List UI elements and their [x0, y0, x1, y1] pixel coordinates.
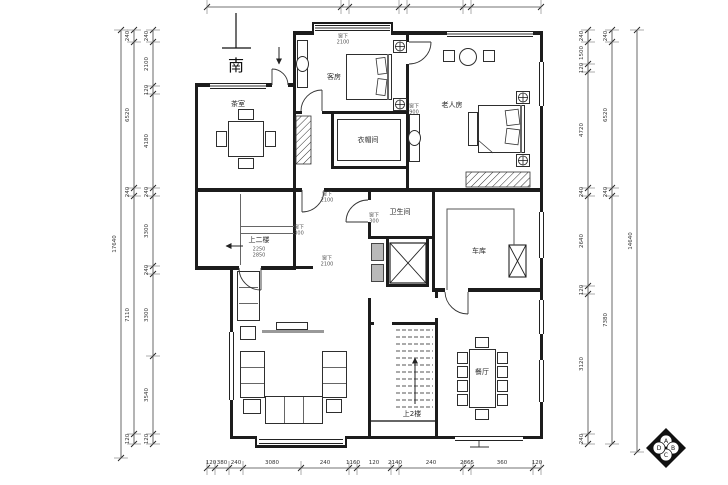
door-bath-arc	[346, 200, 368, 222]
compass-south-label: 南	[228, 52, 244, 76]
dim-label-left-inner-5: 3300	[144, 224, 150, 238]
annotation-hall-steps-num: 22502850	[253, 247, 266, 259]
logo-letter-D: D	[657, 445, 662, 452]
dim-label-right-outer-1: 6520	[603, 108, 609, 122]
annotation-win-duct: 窗下300	[369, 213, 379, 225]
dim-label-bottom-2: 240	[231, 460, 242, 466]
dim-label-bottom-10: 360	[497, 460, 508, 466]
dim-label-bottom-9: 2865	[460, 460, 474, 466]
room-label-stair-up: 上2楼	[403, 409, 421, 419]
dim-label-right-inner-0: 240	[579, 31, 585, 42]
dim-label-right-outer-0: 240	[603, 31, 609, 42]
room-label-garage: 车库	[472, 246, 486, 256]
dim-label-left-inner-9: 120	[144, 434, 150, 445]
logo-letter-B: B	[671, 445, 675, 452]
room-label-hall-up: 上二楼	[249, 235, 270, 245]
dim-label-left-outer-2: 240	[125, 187, 131, 198]
dim-label-bottom-4: 240	[320, 460, 331, 466]
room-label-guest-room: 客房	[327, 72, 341, 82]
dim-label-right-outer-3: 7380	[603, 313, 609, 327]
room-label-bath-room: 卫生间	[390, 207, 411, 217]
plan-linework: ABCD	[0, 0, 728, 485]
door-entry-arc	[272, 69, 288, 85]
door-elder-arc	[409, 42, 431, 64]
door-garage-arc	[445, 292, 468, 314]
dim-label-right-inner-2: 120	[579, 63, 585, 74]
dim-label-left-inner-0: 240	[144, 31, 150, 42]
annotation-win-corr-1: 窗下2100	[321, 192, 334, 204]
dim-label-left-total-0: 17640	[112, 235, 118, 253]
room-label-tea-room: 茶室	[231, 99, 245, 109]
dim-label-left-outer-3: 7110	[125, 308, 131, 322]
dim-label-bottom-5: 1160	[346, 460, 360, 466]
dim-label-right-total-0: 14640	[628, 232, 634, 250]
dim-label-right-outer-2: 240	[603, 187, 609, 198]
dim-label-left-inner-3: 4180	[144, 134, 150, 148]
dim-label-right-inner-5: 2640	[579, 234, 585, 248]
dim-label-bottom-6: 120	[369, 460, 380, 466]
room-label-dining-room: 餐厅	[475, 367, 489, 377]
room-label-cloak-room: 衣帽间	[358, 135, 379, 145]
annotation-win-corr-2: 窗下2100	[321, 256, 334, 268]
dim-label-left-inner-1: 2100	[144, 57, 150, 71]
brand-logo: ABCD	[646, 428, 686, 468]
annotation-win-top-guest: 窗下2100	[337, 34, 350, 46]
dim-label-right-inner-7: 3120	[579, 357, 585, 371]
dim-label-left-outer-1: 6520	[125, 108, 131, 122]
dim-label-left-outer-0: 240	[125, 31, 131, 42]
stair-shaft-hatch	[296, 116, 311, 164]
dim-label-bottom-8: 240	[426, 460, 437, 466]
dim-label-left-outer-4: 120	[125, 434, 131, 445]
dim-label-left-inner-4: 240	[144, 187, 150, 198]
annotation-win-elder: 窗下900	[409, 104, 419, 116]
elder-hatch-strip	[466, 172, 530, 187]
dim-label-bottom-3: 3080	[265, 460, 279, 466]
dim-label-bottom-0: 120	[206, 460, 217, 466]
dim-label-right-inner-8: 240	[579, 434, 585, 445]
annotation-win-hall: 窗下300	[294, 225, 304, 237]
floor-plan-canvas: ABCD 南 茶室客房老人房衣帽间卫生间车库餐厅上2楼上二楼 窗下2100窗下2…	[0, 0, 728, 485]
room-label-elder-room: 老人房	[442, 100, 463, 110]
logo-letter-C: C	[664, 452, 668, 459]
dim-label-bottom-7: 2140	[388, 460, 402, 466]
dim-label-left-inner-8: 3540	[144, 388, 150, 402]
dim-label-right-inner-1: 1500	[579, 46, 585, 60]
dim-label-right-inner-6: 120	[579, 285, 585, 296]
dim-label-right-inner-3: 4720	[579, 123, 585, 137]
dim-label-right-inner-4: 240	[579, 187, 585, 198]
dim-label-left-inner-7: 3300	[144, 308, 150, 322]
dim-label-bottom-1: 380	[217, 460, 228, 466]
door-hall-arc	[239, 268, 261, 290]
dim-label-bottom-11: 120	[532, 460, 543, 466]
dim-label-left-inner-2: 120	[144, 85, 150, 96]
door-guest-arc	[301, 90, 322, 111]
dim-label-left-inner-6: 240	[144, 265, 150, 276]
